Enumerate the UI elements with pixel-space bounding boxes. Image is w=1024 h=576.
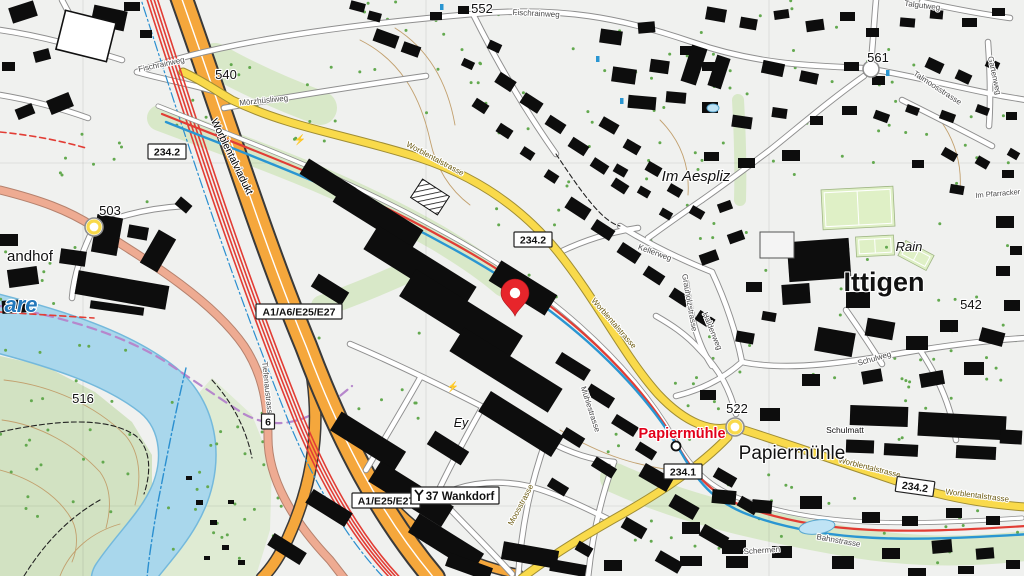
tree-dot [413,402,416,405]
route-badge-text: 6 [265,417,271,429]
place-name-label: andhof [7,248,54,265]
building [917,412,1006,441]
tree-dot [64,157,67,160]
tree-dot [425,111,428,114]
tree-dot [658,141,661,144]
tree-dot [650,540,653,543]
tree-dot [650,77,653,80]
building [986,516,1000,525]
building [771,107,787,119]
elevation-label: 522 [726,401,748,416]
building [996,266,1010,276]
building [844,62,859,71]
tree-dot [717,407,720,410]
tree-dot [668,53,671,56]
exit-badge-text: 37 Wankdorf [426,491,495,503]
tree-dot [401,388,404,391]
tree-dot [901,377,904,380]
tree-dot [405,29,408,32]
tree-dot [729,69,732,72]
tree-dot [924,407,927,410]
tree-dot [894,100,897,103]
tree-dot [206,485,209,488]
tree-dot [985,378,988,381]
building [458,6,469,14]
tree-dot [885,246,888,249]
tree-dot [772,160,775,163]
tree-dot [877,129,880,132]
place-name-label: Im Aespliz [662,168,731,185]
tree-dot [841,155,844,158]
place-name-label: Schulmatt [826,425,864,435]
building [908,568,926,576]
tree-dot [567,180,570,183]
tree-dot [694,545,697,548]
train-station-icon [672,442,681,451]
tree-dot [944,525,947,528]
building [940,320,958,332]
building [964,362,984,375]
building [802,374,820,386]
tree-dot [759,14,762,17]
tree-dot [40,463,43,466]
location-pin-hole [510,288,520,298]
tree-dot [196,488,199,491]
tree-dot [711,236,714,239]
tree-dot [25,444,28,447]
map-canvas[interactable]: ⚡⚡WorblentalviaduktFischrainwegFischrain… [0,0,1024,576]
building [906,336,928,350]
tree-dot [904,131,907,134]
building [956,445,997,460]
building [884,443,919,457]
building [238,560,245,565]
tree-dot [191,99,194,102]
power-pylon-icon: ⚡ [294,133,306,146]
fountain-icon [596,56,600,62]
fountain-icon [620,98,624,104]
tree-dot [442,33,445,36]
green-band [738,100,740,200]
tree-dot [82,458,85,461]
tree-dot [950,397,953,400]
place-name-label: Rain [896,239,923,254]
tree-dot [118,142,121,145]
tree-dot [102,461,105,464]
tree-dot [26,495,29,498]
tree-dot [110,400,113,403]
tree-dot [999,379,1002,382]
sports-field [821,186,895,230]
tree-dot [52,302,55,305]
tree-dot [394,1,397,4]
tree-dot [645,177,648,180]
tree-dot [553,223,556,226]
building [210,520,217,525]
tree-dot [839,314,842,317]
tree-dot [904,379,907,382]
tree-dot [113,158,116,161]
tree-dot [699,237,702,240]
tree-dot [146,200,149,203]
building [751,499,772,514]
tree-dot [617,444,620,447]
tree-dot [461,48,464,51]
building [810,116,823,125]
pond [707,104,719,112]
building [700,390,716,400]
tree-dot [950,349,953,352]
route-badge: 234.2 [514,232,552,247]
tree-dot [323,140,326,143]
tree-dot [729,87,732,90]
building [832,556,854,569]
tree-dot [607,450,610,453]
tree-dot [527,127,530,130]
tree-dot [701,159,704,162]
tree-dot [674,382,677,385]
tree-dot [318,337,321,340]
place-name-label: Ey [454,416,469,430]
tree-dot [901,436,904,439]
tree-dot [566,185,569,188]
tree-dot [126,472,129,475]
route-badge: A1/A6/E25/E27 [256,304,342,319]
building [1010,246,1022,255]
tree-dot [908,380,911,383]
tree-dot [835,26,838,29]
building [882,548,900,559]
tree-dot [937,299,940,302]
elevation-label: 540 [215,67,237,82]
tree-dot [215,442,218,445]
tree-dot [713,400,716,403]
tree-dot [938,222,941,225]
tree-dot [25,507,28,510]
tree-dot [888,124,891,127]
building [0,234,18,246]
tree-dot [833,376,836,379]
building [682,522,700,534]
building [842,106,857,115]
tree-dot [334,120,337,123]
tree-dot [248,66,251,69]
tree-dot [1016,531,1019,534]
tree-dot [866,258,869,261]
tree-dot [479,62,482,65]
building [738,158,755,168]
tree-dot [418,332,421,335]
road [988,42,990,126]
tree-dot [925,133,928,136]
tree-dot [840,287,843,290]
tree-dot [891,81,894,84]
tree-dot [36,515,39,518]
building [222,545,229,550]
building [760,408,780,421]
tree-dot [417,417,420,420]
tree-dot [522,91,525,94]
building [726,556,748,568]
tree-dot [437,68,440,71]
building [787,238,852,282]
building [962,18,977,27]
elevation-label: 542 [960,297,982,312]
building [782,150,800,161]
tree-dot [780,535,783,538]
tree-dot [670,536,673,539]
tree-dot [764,269,767,272]
tree-dot [171,401,174,404]
building [872,76,885,85]
tree-dot [634,539,637,542]
tree-dot [262,463,265,466]
tree-dot [128,433,131,436]
building [846,440,874,454]
station-name-label: Papiermühle [638,426,725,442]
building [958,566,974,574]
tree-dot [470,81,473,84]
tree-dot [373,68,376,71]
building [912,160,924,168]
tree-dot [205,116,208,119]
tree-dot [954,298,957,301]
tree-dot [936,561,939,564]
tree-dot [41,279,44,282]
building [1002,170,1014,178]
power-pylon-icon: ⚡ [447,380,459,393]
tree-dot [243,518,246,521]
route-badge-text: A1/E25/E27 [358,496,415,508]
route-badge-text: 234.2 [154,147,180,159]
building [649,59,670,75]
route-badge: A1/E25/E27 [352,493,420,508]
building [666,91,687,104]
tree-dot [1007,161,1010,164]
tree-dot [59,171,62,174]
building [627,95,656,110]
tree-dot [109,510,112,513]
tree-dot [10,471,13,474]
building [862,512,880,523]
tree-dot [42,270,45,273]
tree-dot [81,133,84,136]
tree-dot [497,223,500,226]
tree-dot [212,531,215,534]
tree-dot [962,524,965,527]
tree-dot [557,209,560,212]
tree-dot [572,47,575,50]
tree-dot [687,404,690,407]
tree-dot [792,49,795,52]
tree-dot [92,163,95,166]
map-frame: ⚡⚡WorblentalviaduktFischrainwegFischrain… [0,0,1024,576]
tree-dot [124,349,127,352]
tree-dot [87,345,90,348]
building [2,62,15,71]
building [1006,112,1017,120]
place-name-label: Papiermühle [739,443,846,464]
building [186,476,192,480]
tree-dot [46,429,49,432]
tree-dot [970,115,973,118]
route-badge: 234.1 [664,464,702,479]
building [1000,429,1023,444]
tree-dot [662,106,665,109]
building [800,496,822,509]
tree-dot [722,142,725,145]
tree-dot [712,53,715,56]
tree-dot [1002,324,1005,327]
tree-dot [985,356,988,359]
building [140,30,152,38]
tree-dot [591,121,594,124]
tree-dot [357,407,360,410]
tree-dot [209,444,212,447]
tree-dot [932,358,935,361]
tree-dot [35,468,38,471]
tree-dot [236,425,239,428]
tree-dot [695,376,698,379]
tree-dot [700,31,703,34]
tree-dot [586,110,589,113]
tree-dot [219,430,222,433]
tree-dot [528,274,531,277]
fountain-icon [440,4,444,10]
tree-dot [793,173,796,176]
tree-dot [919,358,922,361]
tree-dot [1002,114,1005,117]
building [976,547,995,560]
tree-dot [745,231,748,234]
building [430,12,442,20]
tree-dot [615,433,618,436]
sports-field [856,235,895,257]
building [204,556,210,560]
building [946,508,962,518]
tree-dot [738,371,741,374]
river-name-label: are [4,292,37,317]
motorway-exit-badge: 37 Wankdorf [411,487,499,504]
elevation-label: 561 [867,50,889,65]
building [781,283,810,305]
tree-dot [39,351,42,354]
tree-dot [748,344,751,347]
tree-dot [995,367,998,370]
fountain-icon [886,70,890,76]
tree-dot [120,146,123,149]
building [840,12,855,21]
tree-dot [650,520,653,523]
tree-dot [220,536,223,539]
tree-dot [28,439,31,442]
tree-dot [306,83,309,86]
tree-dot [167,506,170,509]
tree-dot [226,533,229,536]
place-name-label: Ittigen [844,267,925,297]
building [1006,560,1020,569]
tree-dot [790,486,793,489]
tree-dot [380,398,383,401]
tree-dot [194,508,197,511]
building [604,560,622,571]
building [124,2,140,11]
building [996,216,1014,228]
building [1004,300,1020,311]
building-public [760,232,794,258]
tree-dot [827,502,830,505]
building [680,556,702,566]
tree-dot [198,471,201,474]
building [850,405,909,427]
tree-dot [72,500,75,503]
tree-dot [907,386,910,389]
tree-dot [30,399,33,402]
building [902,516,918,526]
tree-dot [712,222,715,225]
building [711,489,736,505]
route-badge-text: 234.1 [670,467,696,479]
tree-dot [367,2,370,5]
tree-dot [308,120,311,123]
tree-dot [784,484,787,487]
tree-dot [898,438,901,441]
tree-dot [238,557,241,560]
tree-dot [280,505,283,508]
tree-dot [78,344,81,347]
tree-dot [4,349,7,352]
tree-dot [358,70,361,73]
building [196,500,203,505]
tree-dot [603,69,606,72]
building [866,28,879,37]
building [992,8,1005,16]
tree-dot [790,7,793,10]
route-badge: 234.2 [148,144,186,159]
tree-dot [692,382,695,385]
tree-dot [75,379,78,382]
tree-dot [237,73,240,76]
route-badge: 6 [262,414,275,429]
tree-dot [767,473,770,476]
tree-dot [1006,244,1009,247]
tree-dot [976,509,979,512]
building [638,21,656,33]
tree-dot [230,63,233,66]
tree-dot [883,532,886,535]
tree-dot [964,144,967,147]
building [228,500,234,504]
building [931,539,952,554]
tree-dot [904,399,907,402]
tree-dot [172,548,175,551]
building [746,282,762,292]
tree-dot [244,452,247,455]
tree-dot [912,64,915,67]
tree-dot [89,428,92,431]
tree-dot [253,508,256,511]
elevation-label: 503 [99,203,121,218]
tree-dot [694,151,697,154]
elevation-label: 516 [72,391,94,406]
tree-dot [477,81,480,84]
tree-dot [831,80,834,83]
tree-dot [746,92,749,95]
elevation-label: 552 [471,1,493,16]
building [900,17,916,27]
route-badge-text: A1/A6/E25/E27 [263,307,336,319]
tree-dot [330,66,333,69]
